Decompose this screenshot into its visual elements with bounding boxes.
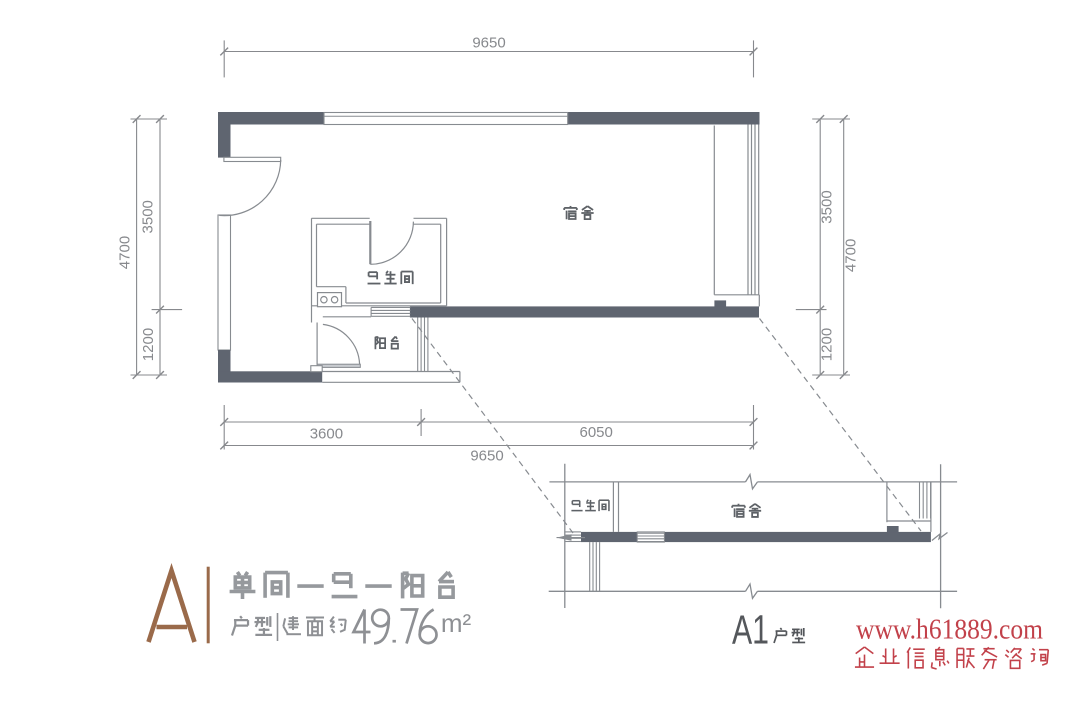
svg-text:3500: 3500 <box>140 200 157 233</box>
svg-text:www.h61889.com: www.h61889.com <box>856 614 1043 646</box>
svg-text:6050: 6050 <box>580 424 613 441</box>
svg-text:m²: m² <box>441 608 472 638</box>
svg-text:3500: 3500 <box>819 190 836 223</box>
svg-text:1200: 1200 <box>819 328 836 361</box>
svg-text:9650: 9650 <box>470 448 503 465</box>
svg-text:9650: 9650 <box>472 35 505 52</box>
svg-text:4700: 4700 <box>117 236 134 269</box>
svg-text:1200: 1200 <box>140 328 157 361</box>
svg-text:A1: A1 <box>732 607 769 653</box>
svg-text:3600: 3600 <box>310 426 343 443</box>
svg-text:4700: 4700 <box>843 239 860 272</box>
